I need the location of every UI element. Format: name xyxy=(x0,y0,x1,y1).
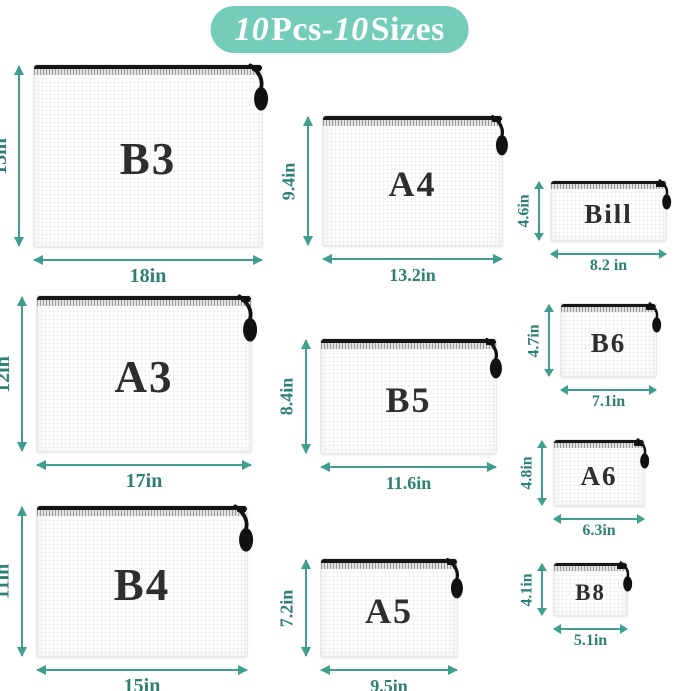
badge-sizes: Sizes xyxy=(371,11,445,48)
height-arrow xyxy=(541,441,543,505)
pouch-group-a3: A3 12in 17in xyxy=(36,295,252,453)
zipper-pull-icon xyxy=(657,179,675,211)
pouch-size-label: B6 xyxy=(561,304,656,377)
height-dimension-label: 12in xyxy=(0,295,16,453)
height-arrow xyxy=(21,297,23,451)
height-arrow xyxy=(21,507,23,656)
pouch-group-a5: A5 7.2in 9.5in xyxy=(320,558,458,658)
width-arrow xyxy=(323,258,502,260)
pouch-a4: A4 xyxy=(322,115,503,247)
zipper-pull-icon xyxy=(483,337,507,381)
pouch-group-b4: B4 11in 15in xyxy=(36,505,248,658)
height-dimension-label: 4.6in xyxy=(512,180,538,242)
zipper-pull-icon xyxy=(618,561,636,593)
pouch-a5: A5 xyxy=(320,558,458,658)
pouch-size-label: A5 xyxy=(321,559,457,657)
width-dimension-label: 17in xyxy=(36,468,252,494)
width-dimension-label: 15in xyxy=(36,673,248,691)
pouch-a3: A3 xyxy=(36,295,252,453)
width-dimension-label: 8.2 in xyxy=(550,253,667,279)
zipper-pull-icon xyxy=(246,63,274,113)
badge-count-2: 10 xyxy=(334,11,371,48)
width-arrow xyxy=(321,669,457,671)
zipper-pull-icon xyxy=(235,294,263,344)
pouch-group-b3: B3 13in 18in xyxy=(33,64,263,248)
pouch-group-a4: A4 9.4in 13.2in xyxy=(322,115,503,247)
width-dimension-label: 7.1in xyxy=(560,389,657,415)
pouch-group-bill: Bill 4.6in 8.2 in xyxy=(550,180,667,242)
pouch-group-a6: A6 4.8in 6.3in xyxy=(553,439,645,507)
badge-count: 10 xyxy=(234,11,271,48)
pouch-group-b6: B6 4.7in 7.1in xyxy=(560,303,657,378)
width-dimension-label: 9.5in xyxy=(320,673,458,691)
width-arrow xyxy=(34,259,262,261)
width-arrow xyxy=(37,669,247,671)
pouch-group-b5: B5 8.4in 11.6in xyxy=(320,338,497,455)
height-dimension-label: 4.7in xyxy=(522,303,548,378)
pouch-b8: B8 xyxy=(553,562,628,617)
pouch-b5: B5 xyxy=(320,338,497,455)
height-arrow xyxy=(305,340,307,453)
height-arrow xyxy=(541,564,543,615)
height-arrow xyxy=(307,117,309,245)
pouch-bill: Bill xyxy=(550,180,667,242)
product-image: 10Pcs-10Sizes B3 13in 18in A3 12in 17in … xyxy=(0,0,679,691)
height-dimension-label: 11in xyxy=(0,505,16,658)
pouch-size-label: B3 xyxy=(34,65,262,247)
pouch-b4: B4 xyxy=(36,505,248,658)
count-sizes-badge: 10Pcs-10Sizes xyxy=(210,6,469,53)
zipper-pull-icon xyxy=(444,557,468,601)
pouch-group-b8: B8 4.1in 5.1in xyxy=(553,562,628,617)
width-dimension-label: 6.3in xyxy=(553,518,645,544)
pouch-size-label: B5 xyxy=(321,339,496,454)
height-dimension-label: 4.1in xyxy=(515,562,541,617)
height-dimension-label: 7.2in xyxy=(274,558,300,658)
zipper-pull-icon xyxy=(231,504,259,554)
width-dimension-label: 18in xyxy=(33,263,263,289)
width-dimension-label: 13.2in xyxy=(322,262,503,288)
pouch-size-label: B8 xyxy=(554,563,627,616)
pouch-b6: B6 xyxy=(560,303,657,378)
height-arrow xyxy=(538,182,540,240)
pouch-size-label: A4 xyxy=(323,116,502,246)
height-arrow xyxy=(18,66,20,246)
pouch-size-label: Bill xyxy=(551,181,666,241)
height-dimension-label: 8.4in xyxy=(274,338,300,455)
badge-pcs: Pcs- xyxy=(271,11,333,48)
width-arrow xyxy=(321,466,496,468)
height-dimension-label: 9.4in xyxy=(276,115,302,247)
pouch-size-label: B4 xyxy=(37,506,247,657)
zipper-pull-icon xyxy=(635,438,653,470)
height-dimension-label: 13in xyxy=(0,64,13,248)
width-dimension-label: 11.6in xyxy=(320,470,497,496)
pouch-a6: A6 xyxy=(553,439,645,507)
height-arrow xyxy=(305,560,307,656)
zipper-pull-icon xyxy=(489,114,513,158)
pouch-b3: B3 xyxy=(33,64,263,248)
width-arrow xyxy=(37,464,251,466)
pouch-size-label: A6 xyxy=(554,440,644,506)
height-dimension-label: 4.8in xyxy=(515,439,541,507)
zipper-pull-icon xyxy=(647,302,665,334)
height-arrow xyxy=(548,305,550,376)
pouch-size-label: A3 xyxy=(37,296,251,452)
width-dimension-label: 5.1in xyxy=(553,628,628,654)
